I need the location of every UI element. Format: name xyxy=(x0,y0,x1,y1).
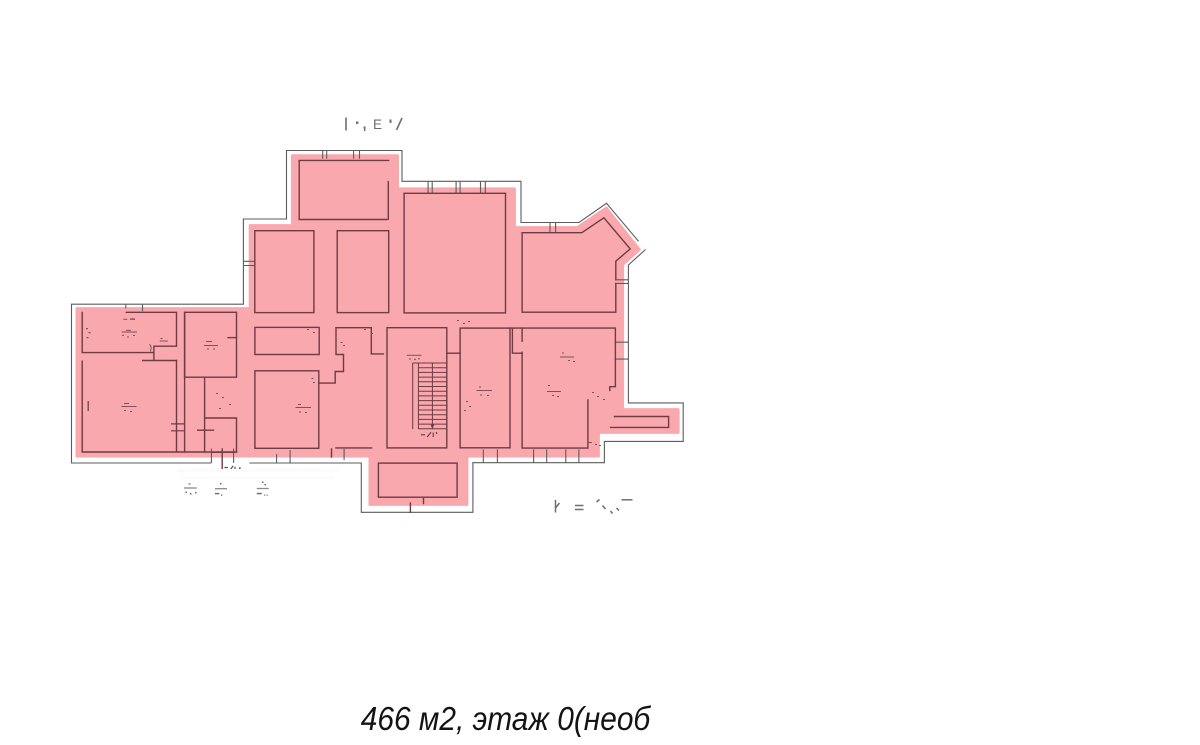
svg-text:Е: Е xyxy=(373,117,382,132)
